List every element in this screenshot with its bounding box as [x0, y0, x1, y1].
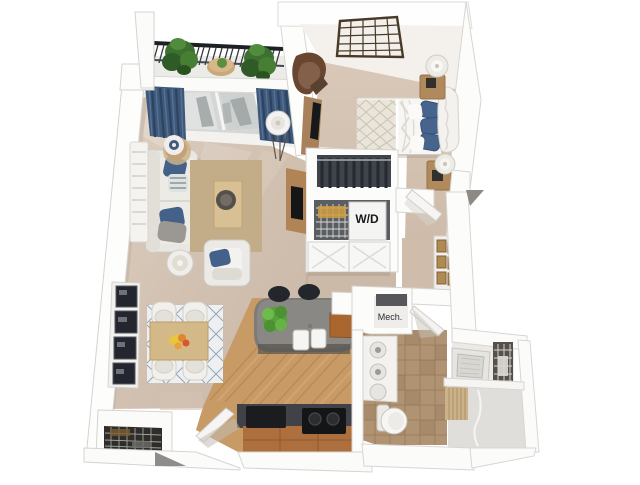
svg-text:Mech.: Mech. [378, 312, 403, 322]
svg-text:W/D: W/D [355, 212, 379, 226]
